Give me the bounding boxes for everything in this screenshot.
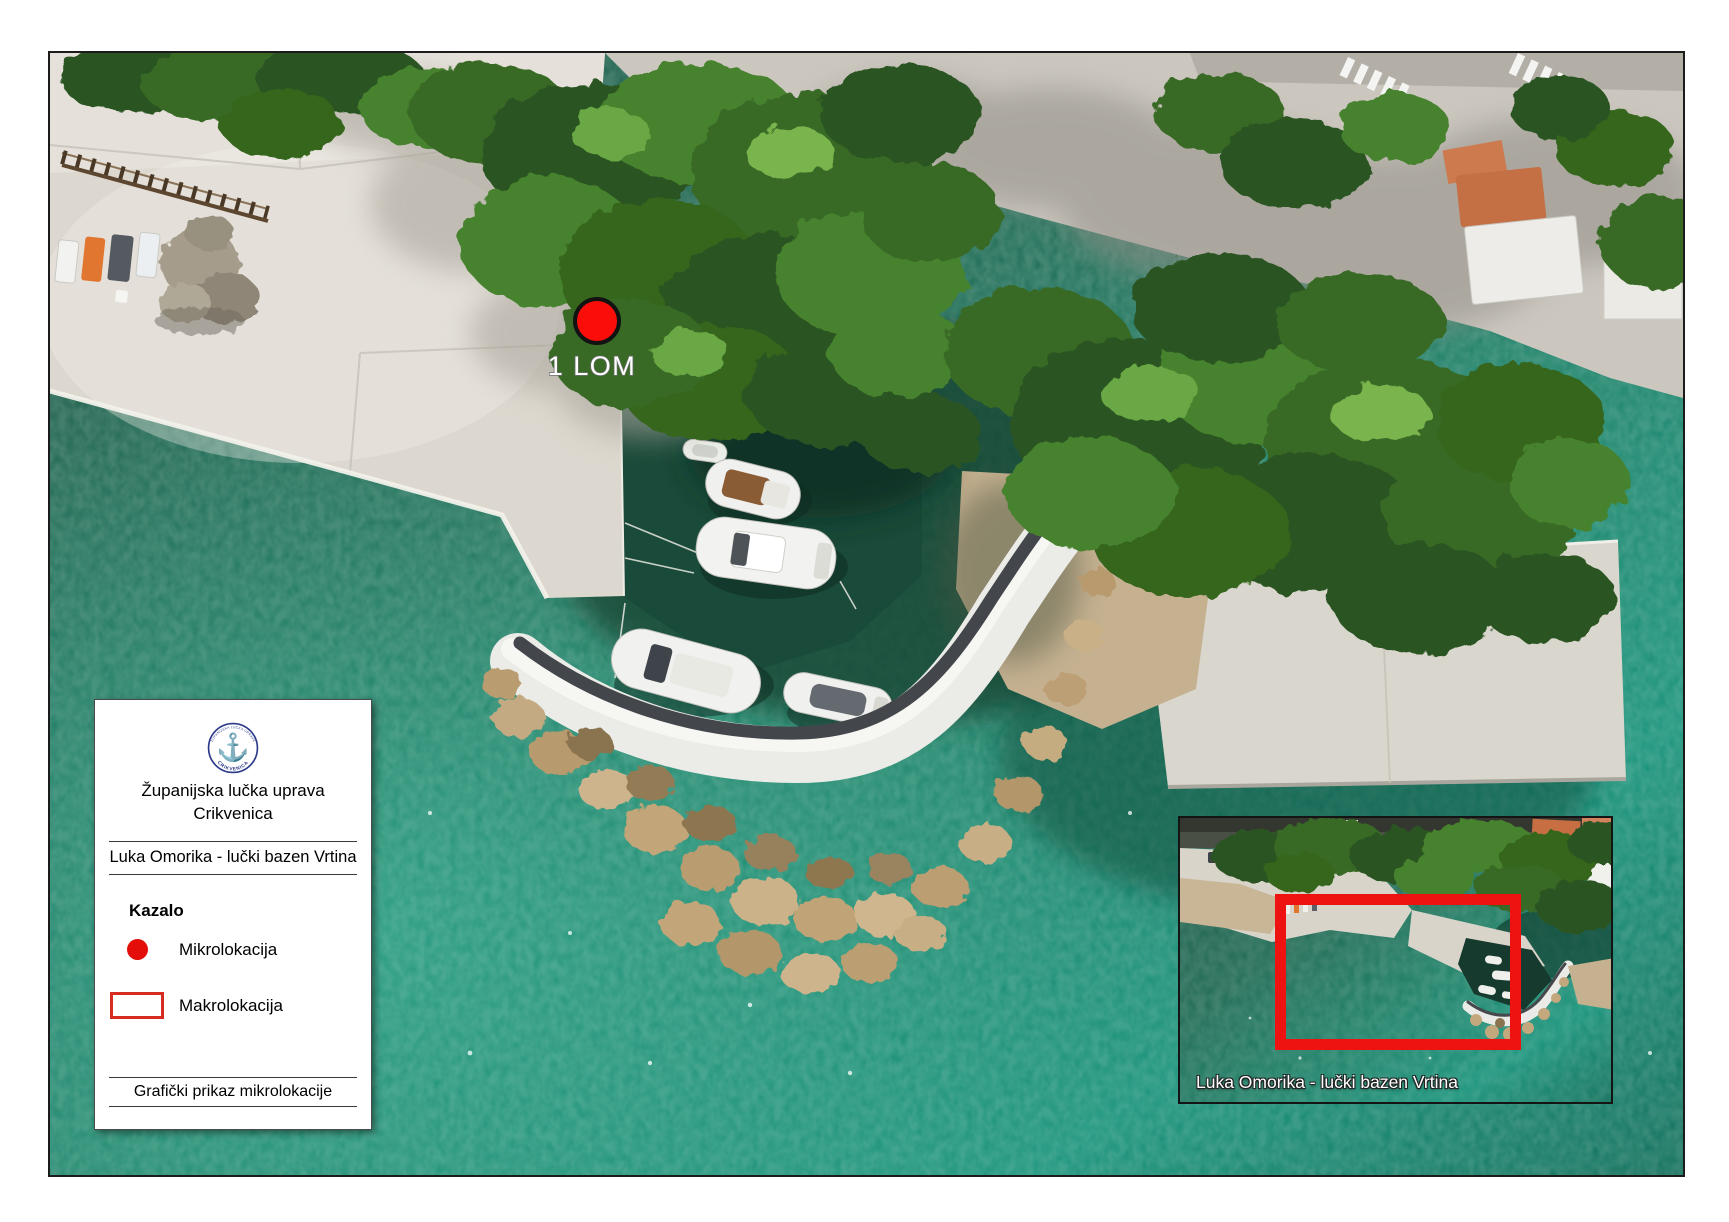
organization-line1: Županijska lučka uprava — [95, 779, 371, 802]
macro-location-rectangle — [1275, 894, 1521, 1050]
page: 1 LOM ŽUPANIJSKA LUČKA UPRAVA ⚓ CRIKVENI… — [0, 0, 1729, 1222]
red-rectangle-symbol — [110, 992, 164, 1019]
anchor-icon: ⚓ — [216, 731, 250, 762]
red-dot-symbol — [127, 939, 148, 960]
index-heading: Kazalo — [129, 901, 371, 921]
port-authority-seal: ŽUPANIJSKA LUČKA UPRAVA ⚓ CRIKVENICA — [207, 722, 259, 774]
legend-item-microlocation: Mikrolokacija — [95, 939, 371, 960]
legend-item-label: Makrolokacija — [179, 996, 283, 1016]
project-title: Luka Omorika - lučki bazen Vrtina — [95, 842, 371, 874]
marker-label: 1 LOM — [548, 351, 637, 381]
inset-map: Luka Omorika - lučki bazen Vrtina — [1178, 816, 1613, 1104]
legend-item-label: Mikrolokacija — [179, 940, 277, 960]
inset-caption: Luka Omorika - lučki bazen Vrtina — [1196, 1072, 1458, 1093]
legend-item-macrolocation: Makrolokacija — [95, 992, 371, 1019]
legend-footer: Grafički prikaz mikrolokacije — [95, 1077, 371, 1107]
legend-panel: ŽUPANIJSKA LUČKA UPRAVA ⚓ CRIKVENICA Žup… — [94, 699, 372, 1130]
footer-caption: Grafički prikaz mikrolokacije — [95, 1078, 371, 1106]
organization-line2: Crikvenica — [95, 802, 371, 825]
organization-title: Županijska lučka uprava Crikvenica — [95, 779, 371, 825]
divider — [109, 1106, 357, 1107]
aerial-photo: 1 LOM ŽUPANIJSKA LUČKA UPRAVA ⚓ CRIKVENI… — [48, 51, 1685, 1177]
divider — [109, 874, 357, 875]
